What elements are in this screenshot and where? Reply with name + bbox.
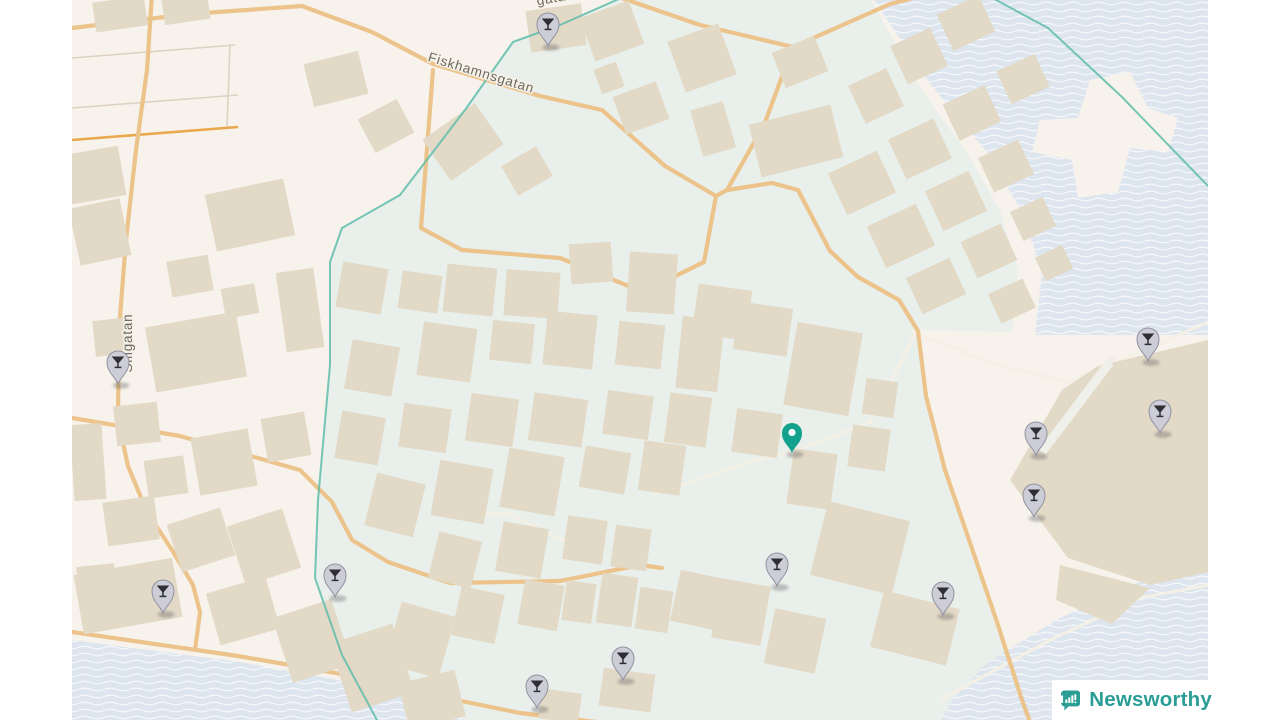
- building: [517, 579, 564, 631]
- building: [733, 301, 793, 356]
- canvas-margin-right: [1208, 0, 1280, 720]
- building: [495, 521, 549, 578]
- building: [144, 455, 189, 498]
- building: [579, 445, 632, 494]
- building: [635, 587, 674, 633]
- pin-shadow: [1143, 359, 1160, 366]
- building: [166, 255, 214, 298]
- newsworthy-icon: [1061, 686, 1080, 715]
- building: [561, 580, 596, 624]
- building: [862, 378, 899, 418]
- map-canvas[interactable]: FiskhamnsgatanSillgatangatan: [0, 0, 1280, 720]
- building: [847, 425, 890, 472]
- building: [638, 440, 687, 495]
- building: [615, 321, 665, 370]
- building: [398, 403, 452, 453]
- building: [528, 392, 588, 447]
- building: [499, 448, 565, 517]
- building: [398, 270, 443, 313]
- building: [599, 668, 656, 713]
- pin-shadow: [532, 706, 549, 713]
- building: [334, 411, 386, 466]
- building: [113, 402, 161, 446]
- pin-shadow: [113, 382, 130, 389]
- logo-text: Newsworthy: [1089, 688, 1212, 712]
- pin-shadow: [772, 584, 789, 591]
- building: [610, 525, 651, 572]
- pin-shadow: [1155, 431, 1172, 438]
- building: [675, 316, 724, 392]
- building: [664, 392, 713, 447]
- building: [562, 515, 608, 564]
- building: [344, 339, 400, 397]
- building: [69, 423, 106, 501]
- building: [542, 311, 597, 370]
- building: [335, 261, 388, 314]
- pin-shadow: [618, 678, 635, 685]
- building: [596, 573, 639, 628]
- building: [569, 242, 614, 285]
- building: [431, 460, 494, 525]
- pin-shadow: [543, 44, 560, 51]
- building: [465, 393, 519, 447]
- pin-shadow: [158, 611, 175, 618]
- building: [443, 264, 498, 317]
- building: [102, 496, 160, 547]
- building: [489, 320, 535, 364]
- building: [602, 390, 654, 440]
- pin-shadow: [787, 451, 804, 458]
- building: [711, 578, 771, 646]
- building: [64, 146, 127, 205]
- newsworthy-logo[interactable]: Newsworthy: [1052, 680, 1218, 720]
- pin-shadow: [1029, 515, 1046, 522]
- building: [731, 408, 783, 458]
- pin-shadow: [1031, 453, 1048, 460]
- building: [190, 428, 257, 495]
- pin-shadow: [330, 595, 347, 602]
- canvas-margin-left: [0, 0, 72, 720]
- building: [626, 251, 678, 314]
- pin-hole: [788, 429, 795, 436]
- building: [417, 322, 478, 383]
- pin-shadow: [938, 613, 955, 620]
- building: [261, 412, 312, 463]
